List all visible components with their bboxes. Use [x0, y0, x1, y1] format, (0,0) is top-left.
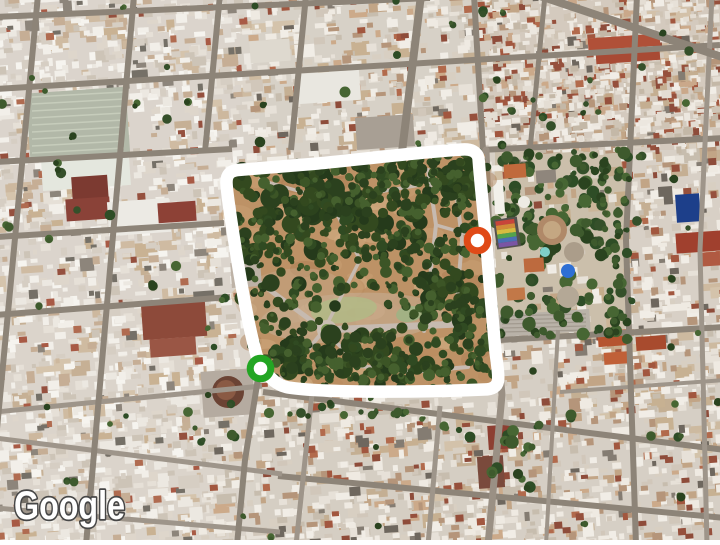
- svg-text:Google: Google: [14, 484, 125, 528]
